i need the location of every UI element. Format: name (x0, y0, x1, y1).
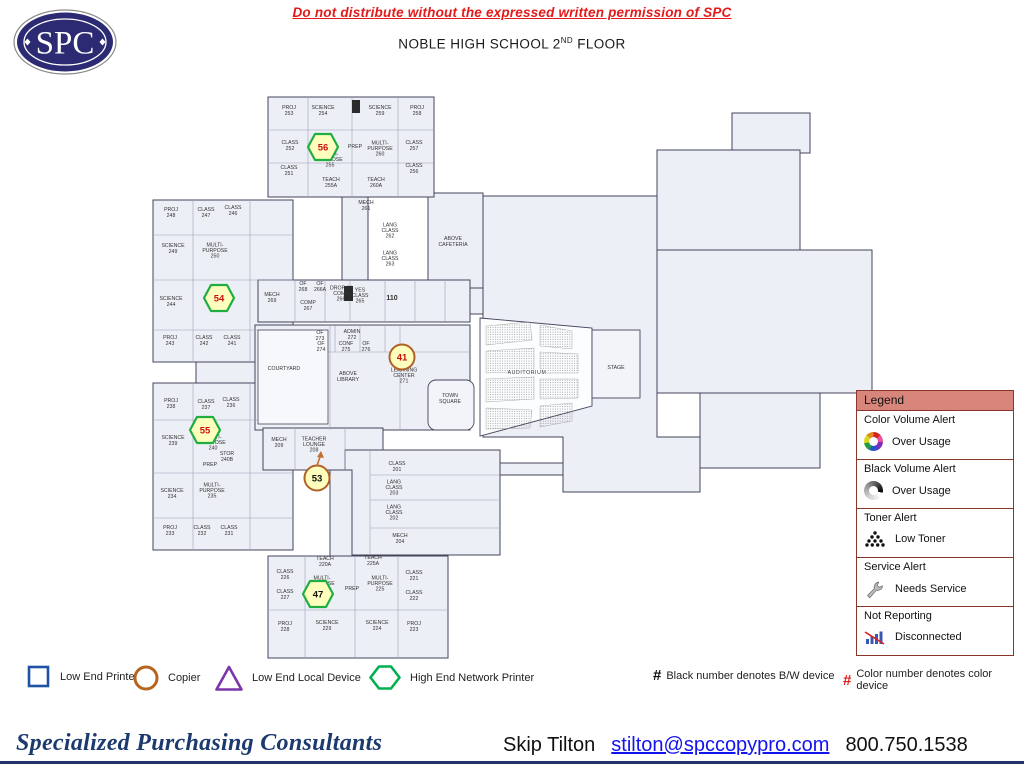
room-label: LANGCLASS263 (381, 250, 399, 267)
room-label: PREP (348, 144, 363, 150)
symbol-high-end-network-printer: High End Network Printer (368, 664, 534, 691)
legend-section-toner-alert: Toner Alert Low Toner (857, 509, 1013, 558)
bw-number-note: # Black number denotes B/W device (653, 668, 834, 683)
hash-symbol: # (653, 668, 661, 683)
room-label: COURTYARD (268, 366, 301, 372)
device-marker-56: 56 (308, 134, 338, 160)
device-marker-47: 47 (303, 581, 333, 607)
company-name: Specialized Purchasing Consultants (16, 730, 382, 757)
room-label: MECH261 (358, 200, 374, 212)
room-label: STOR240B (220, 451, 235, 463)
legend-section-title: Not Reporting (864, 610, 1006, 622)
legend-section-service-alert: Service Alert Needs Service (857, 558, 1013, 607)
stairs-block (352, 100, 360, 113)
square-icon (26, 664, 52, 690)
symbol-label: Copier (168, 672, 200, 684)
device-marker-54: 54 (204, 285, 234, 311)
room-label: LANGCLASS262 (381, 222, 399, 239)
device-number: 47 (313, 589, 324, 600)
symbol-low-end-local-device: Low End Local Device (214, 664, 361, 692)
email-link[interactable]: stilton@spccopypro.com (611, 734, 829, 757)
legend-section-label: Needs Service (895, 583, 967, 595)
device-number: 56 (318, 142, 329, 153)
footer-contact: Skip Tilton stilton@spccopypro.com 800.7… (503, 734, 968, 757)
triangle-icon (214, 664, 244, 692)
legend-section-label: Low Toner (895, 533, 946, 545)
hexagon-icon (368, 664, 402, 691)
room-label: AUDITORIUM (508, 370, 547, 376)
legend-section-color-volume-alert: Color Volume Alert Over Usage (857, 411, 1013, 460)
legend-title: Legend (857, 391, 1013, 411)
legend-section-black-volume-alert: Black Volume Alert Over Usage (857, 460, 1013, 509)
legend-section-title: Black Volume Alert (864, 463, 1006, 475)
note-text: Color number denotes color device (856, 668, 1024, 692)
symbol-copier: Copier (132, 664, 200, 692)
room-label: 110 (386, 295, 397, 302)
room-label: OF274 (317, 341, 326, 353)
room-label: STAGE (607, 365, 625, 371)
contact-name: Skip Tilton (503, 734, 595, 757)
legend-section-not-reporting: Not Reporting Disconnected (857, 607, 1013, 655)
stage-area (592, 330, 640, 398)
symbol-label: High End Network Printer (410, 672, 534, 684)
device-marker-55: 55 (190, 417, 220, 443)
color-wheel-icon (864, 432, 883, 451)
phone-number: 800.750.1538 (845, 734, 967, 757)
note-text: Black number denotes B/W device (666, 670, 834, 682)
circle-icon (132, 664, 160, 692)
legend-section-title: Service Alert (864, 561, 1006, 573)
device-number: 53 (312, 473, 323, 484)
symbol-label: Low End Local Device (252, 672, 361, 684)
device-marker-41: 41 (390, 345, 415, 370)
black-wheel-icon (864, 481, 883, 500)
town-square-area (428, 380, 474, 430)
hash-symbol: # (843, 673, 851, 688)
room-label: OF273 (316, 330, 325, 342)
room-label: PREP (345, 586, 360, 592)
legend-panel: Legend Color Volume Alert Over UsageBlac… (856, 390, 1014, 656)
room-label: OF268 (299, 281, 308, 293)
symbol-label: Low End Printer (60, 671, 138, 683)
page: SPC Do not distribute without the expres… (0, 0, 1024, 764)
room-label: PREP (203, 462, 218, 468)
wrench-icon (864, 579, 886, 599)
color-number-note: # Color number denotes color device (843, 668, 1024, 692)
room-label: ABOVELIBRARY (337, 371, 360, 383)
device-number: 41 (397, 352, 408, 363)
symbol-low-end-printer: Low End Printer (26, 664, 138, 690)
room-label: OF276 (362, 341, 371, 353)
device-number: 55 (200, 425, 211, 436)
legend-section-label: Disconnected (895, 631, 962, 643)
legend-section-label: Over Usage (892, 436, 951, 448)
legend-section-title: Toner Alert (864, 512, 1006, 524)
bar-chart-slash-icon (864, 628, 886, 646)
toner-dots-icon (864, 530, 886, 548)
device-number: 54 (214, 293, 225, 304)
legend-section-label: Over Usage (892, 485, 951, 497)
legend-section-title: Color Volume Alert (864, 414, 1006, 426)
